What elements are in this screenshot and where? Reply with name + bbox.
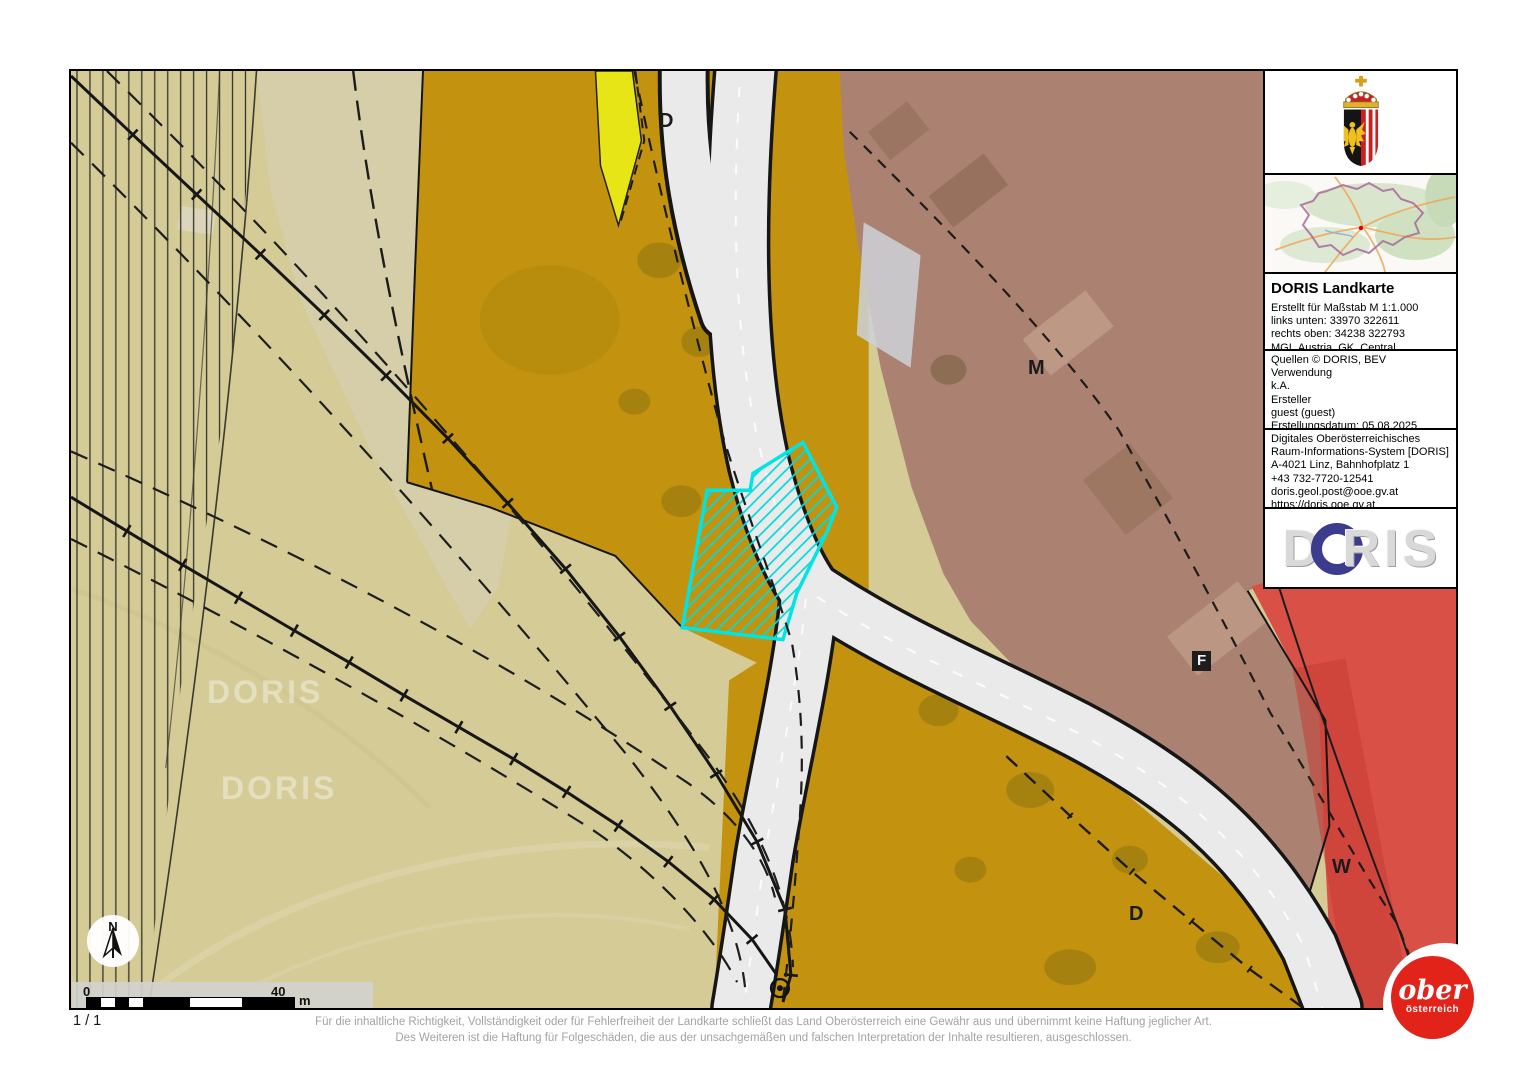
creator-label: Ersteller bbox=[1271, 394, 1450, 407]
upper-austria-coat-of-arms bbox=[1332, 74, 1390, 170]
coord-lower-left: links unten: 33970 322611 bbox=[1271, 315, 1450, 328]
projection-name: MGI_Austria_GK_Central bbox=[1271, 342, 1450, 351]
map-canvas[interactable]: D M F W D DORIS DORIS N 0 40 m bbox=[69, 69, 1458, 1010]
usage-label: Verwendung bbox=[1271, 367, 1450, 380]
map-info-panel: DORIS Landkarte Erstellt für Maßstab M 1… bbox=[1263, 69, 1458, 589]
scale-bar: 0 40 m bbox=[72, 982, 373, 1010]
zone-label-m: M bbox=[1028, 357, 1045, 380]
zone-label-d-lower: D bbox=[1129, 903, 1143, 926]
disclaimer: Für die inhaltliche Richtigkeit, Vollstä… bbox=[69, 1014, 1458, 1046]
zone-label-w: W bbox=[1332, 856, 1351, 879]
org-address: A-4021 Linz, Bahnhofplatz 1 bbox=[1271, 459, 1450, 472]
doris-logo: D RIS bbox=[1281, 519, 1441, 577]
creation-date: Erstellungsdatum: 05.08.2025 bbox=[1271, 420, 1450, 430]
scale-info: Erstellt für Maßstab M 1:1.000 bbox=[1271, 302, 1450, 315]
creator-value: guest (guest) bbox=[1271, 407, 1450, 420]
upper-austria-overview-map bbox=[1265, 175, 1456, 272]
zone-label-f: F bbox=[1192, 651, 1211, 671]
location-marker-dot bbox=[1359, 226, 1363, 230]
scale-bar-segments bbox=[86, 997, 295, 1008]
map-title: DORIS Landkarte bbox=[1271, 280, 1450, 297]
coord-upper-right: rechts oben: 34238 322793 bbox=[1271, 328, 1450, 341]
doris-print-page: D M F W D DORIS DORIS N 0 40 m bbox=[0, 0, 1527, 1080]
org-name-line2: Raum-Informations-System [DORIS] bbox=[1271, 446, 1450, 459]
disclaimer-line-1: Für die inhaltliche Richtigkeit, Vollstä… bbox=[69, 1014, 1458, 1030]
org-email: doris.geol.post@ooe.gv.at bbox=[1271, 486, 1450, 499]
usage-value: k.A. bbox=[1271, 380, 1450, 393]
overview-map-box bbox=[1265, 175, 1456, 274]
org-website: https://doris.ooe.gv.at bbox=[1271, 499, 1450, 509]
zoning-basemap bbox=[71, 71, 1456, 1008]
map-title-box: DORIS Landkarte Erstellt für Maßstab M 1… bbox=[1265, 274, 1456, 351]
sources-line: Quellen © DORIS, BEV bbox=[1271, 354, 1450, 367]
source-info-box: Quellen © DORIS, BEV Verwendung k.A. Ers… bbox=[1265, 351, 1456, 430]
org-name-line1: Digitales Oberösterreichisches bbox=[1271, 433, 1450, 446]
north-arrow: N bbox=[86, 914, 140, 968]
org-phone: +43 732-7720-12541 bbox=[1271, 473, 1450, 486]
ober-logo-script: ober bbox=[1398, 978, 1466, 1004]
scale-unit-label: m bbox=[299, 993, 311, 1008]
contact-info-box: Digitales Oberösterreichisches Raum-Info… bbox=[1265, 430, 1456, 509]
coat-of-arms-box bbox=[1265, 71, 1456, 175]
disclaimer-line-2: Des Weiteren ist die Haftung für Folgesc… bbox=[69, 1030, 1458, 1046]
doris-logo-box: D RIS bbox=[1265, 509, 1456, 587]
zone-label-d-upper: D bbox=[659, 110, 673, 133]
doris-logo-ris: RIS bbox=[1343, 519, 1442, 579]
